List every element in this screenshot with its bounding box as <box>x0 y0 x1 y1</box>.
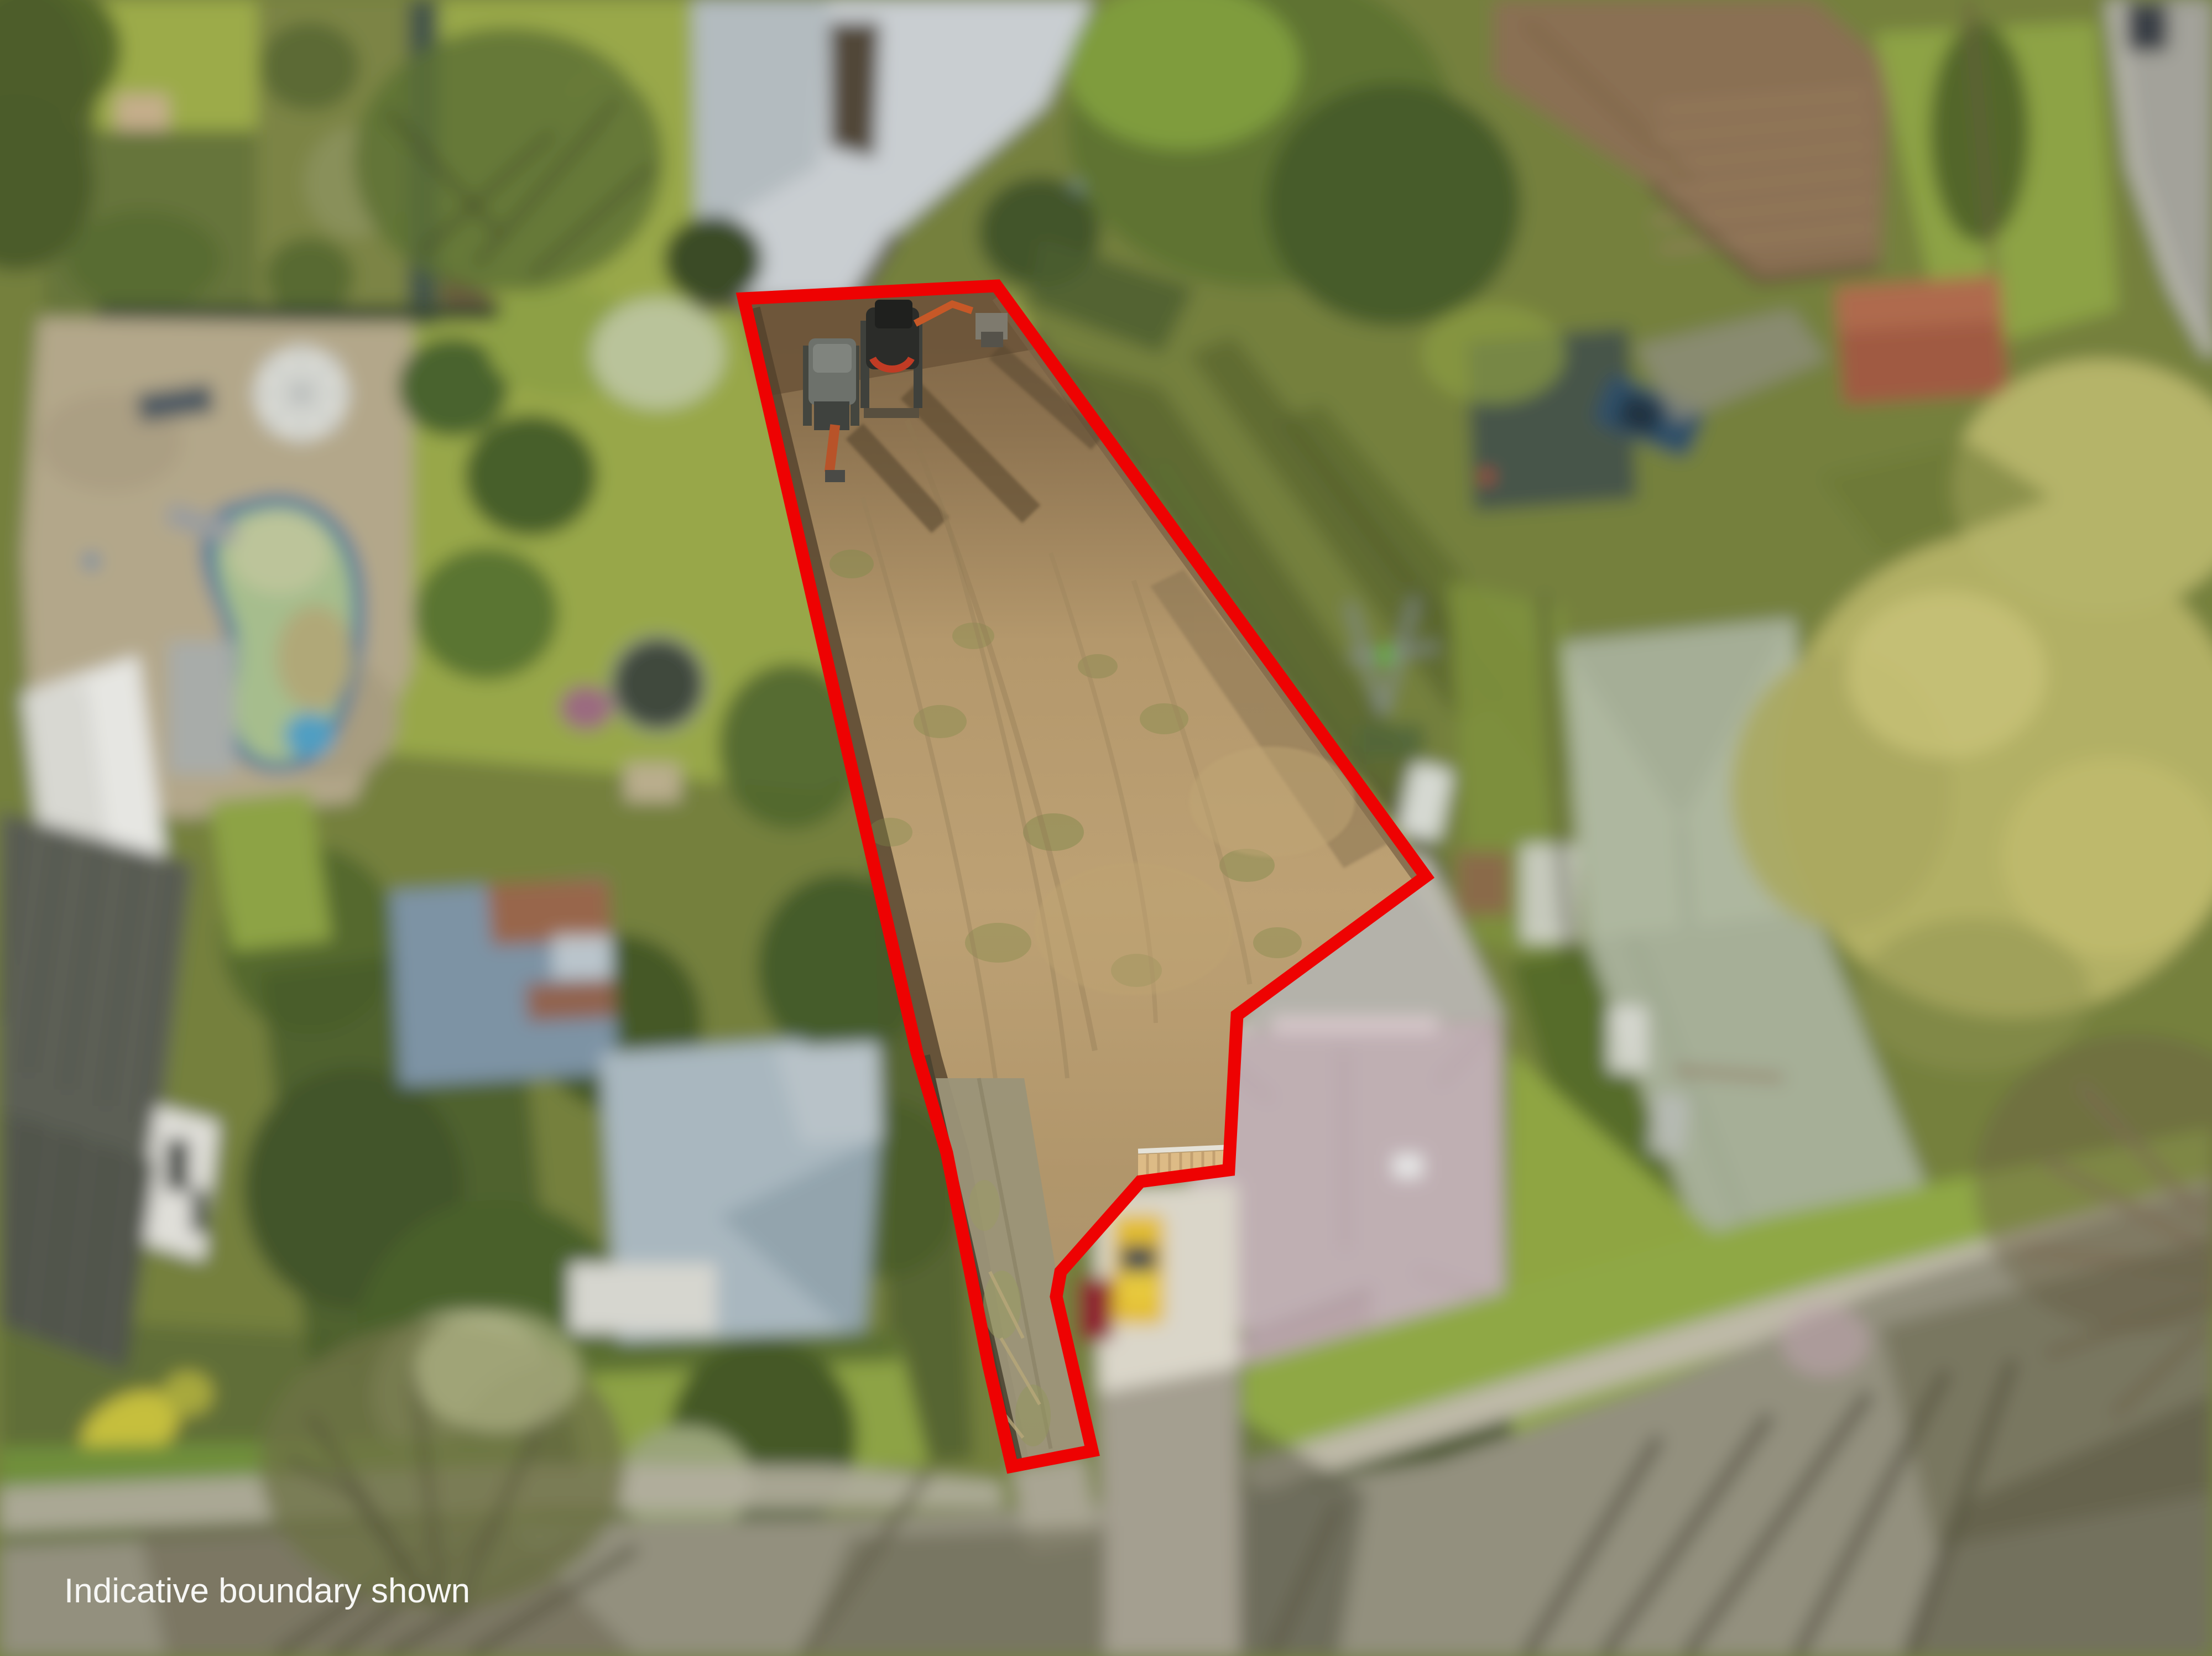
svg-text:Indicative boundary shown: Indicative boundary shown <box>64 1572 470 1610</box>
